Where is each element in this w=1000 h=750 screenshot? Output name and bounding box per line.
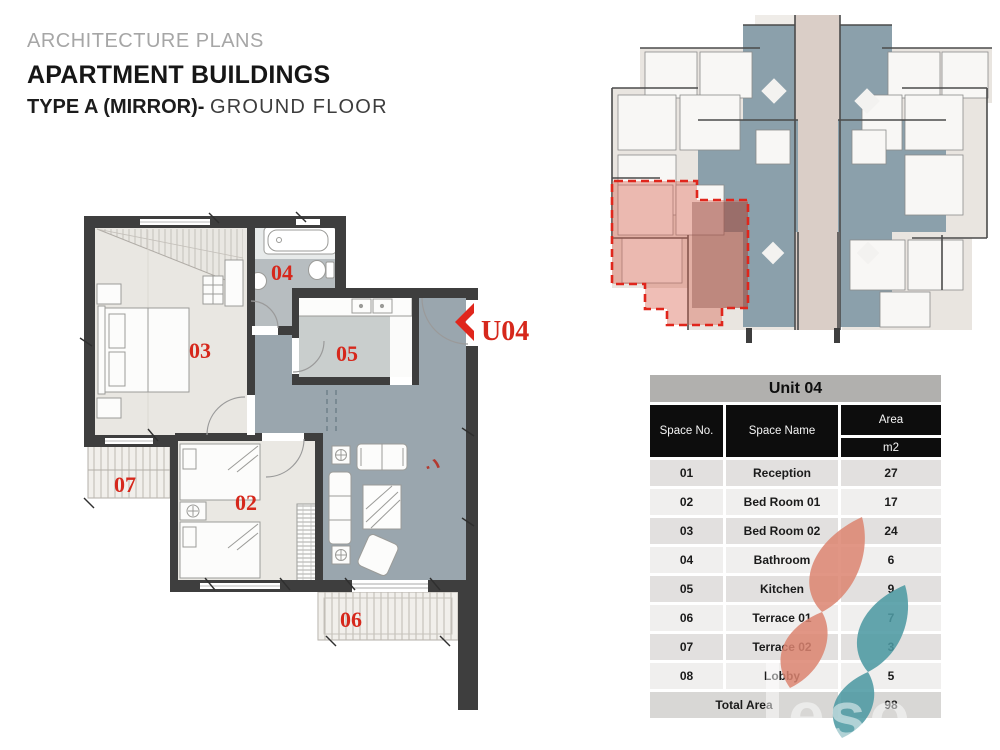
table-row: 07Terrace 023 <box>650 634 941 660</box>
eyebrow-text: ARCHITECTURE PLANS <box>27 30 587 53</box>
table-cell-area: 17 <box>841 489 941 515</box>
label-bedroom1: 02 <box>235 490 257 515</box>
table-cell-area: 27 <box>841 460 941 486</box>
label-terrace1: 06 <box>340 607 362 632</box>
table-row: 08Lobby5 <box>650 663 941 689</box>
kitchen-counter <box>296 296 412 316</box>
table-rows: 01Reception2702Bed Room 011703Bed Room 0… <box>650 460 941 689</box>
total-value: 98 <box>841 692 941 718</box>
label-terrace2: 07 <box>114 472 136 497</box>
col-area-label: Area <box>841 405 941 438</box>
table-cell-name: Kitchen <box>726 576 838 602</box>
wardrobe <box>297 504 317 584</box>
header: ARCHITECTURE PLANS APARTMENT BUILDINGS T… <box>27 30 587 119</box>
table-row: 02Bed Room 0117 <box>650 489 941 515</box>
table-cell-name: Reception <box>726 460 838 486</box>
table-row: 06Terrace 017 <box>650 605 941 631</box>
lobby-corridor-floor <box>250 333 292 437</box>
total-label: Total Area <box>650 692 838 718</box>
subtitle-floor: GROUND FLOOR <box>210 96 388 118</box>
rug <box>363 485 401 529</box>
table-row: 01Reception27 <box>650 460 941 486</box>
table-cell-name: Bed Room 01 <box>726 489 838 515</box>
label-bathroom: 04 <box>271 260 293 285</box>
table-cell-name: Terrace 02 <box>726 634 838 660</box>
slide: ARCHITECTURE PLANS APARTMENT BUILDINGS T… <box>0 0 1000 750</box>
col-space-no: Space No. <box>650 405 723 457</box>
col-space-name: Space Name <box>726 405 838 457</box>
col-area-unit: m2 <box>841 438 941 457</box>
table-row: 05Kitchen9 <box>650 576 941 602</box>
table-header-row: Space No. Space Name Area m2 <box>650 405 941 457</box>
unit-floor-plan: 03 04 05 02 07 06 ٠١ U04 <box>60 190 560 725</box>
table-cell-name: Terrace 01 <box>726 605 838 631</box>
subtitle-type: TYPE A (MIRROR)- <box>27 96 204 118</box>
table-cell-area: 9 <box>841 576 941 602</box>
table-cell-name: Bathroom <box>726 547 838 573</box>
table-cell-area: 24 <box>841 518 941 544</box>
table-cell-no: 05 <box>650 576 723 602</box>
building-overview-plan <box>600 8 995 343</box>
table-total-row: Total Area 98 <box>650 692 941 718</box>
overview-stubs <box>746 328 840 343</box>
unit-area-table: Unit 04 Space No. Space Name Area m2 01R… <box>650 375 941 718</box>
page-subtitle: TYPE A (MIRROR)- GROUND FLOOR <box>27 96 587 119</box>
table-row: 03Bed Room 0224 <box>650 518 941 544</box>
table-cell-area: 5 <box>841 663 941 689</box>
table-title: Unit 04 <box>650 375 941 402</box>
table-cell-area: 6 <box>841 547 941 573</box>
table-cell-no: 04 <box>650 547 723 573</box>
table-row: 04Bathroom6 <box>650 547 941 573</box>
table-cell-no: 08 <box>650 663 723 689</box>
page-title: APARTMENT BUILDINGS <box>27 61 587 90</box>
label-bedroom2: 03 <box>189 338 211 363</box>
entry-unit-label: U04 <box>481 316 529 347</box>
table-cell-area: 7 <box>841 605 941 631</box>
table-cell-no: 03 <box>650 518 723 544</box>
terrace-01-area <box>318 592 458 640</box>
bathtub <box>264 227 336 254</box>
toilet <box>309 261 335 280</box>
unit04-highlight <box>612 181 748 325</box>
table-cell-no: 07 <box>650 634 723 660</box>
table-cell-name: Bed Room 02 <box>726 518 838 544</box>
table-cell-no: 02 <box>650 489 723 515</box>
col-area: Area m2 <box>841 405 941 457</box>
table-cell-no: 01 <box>650 460 723 486</box>
overview-corridor <box>795 15 840 330</box>
label-kitchen: 05 <box>336 341 358 366</box>
table-cell-no: 06 <box>650 605 723 631</box>
table-cell-area: 3 <box>841 634 941 660</box>
table-cell-name: Lobby <box>726 663 838 689</box>
